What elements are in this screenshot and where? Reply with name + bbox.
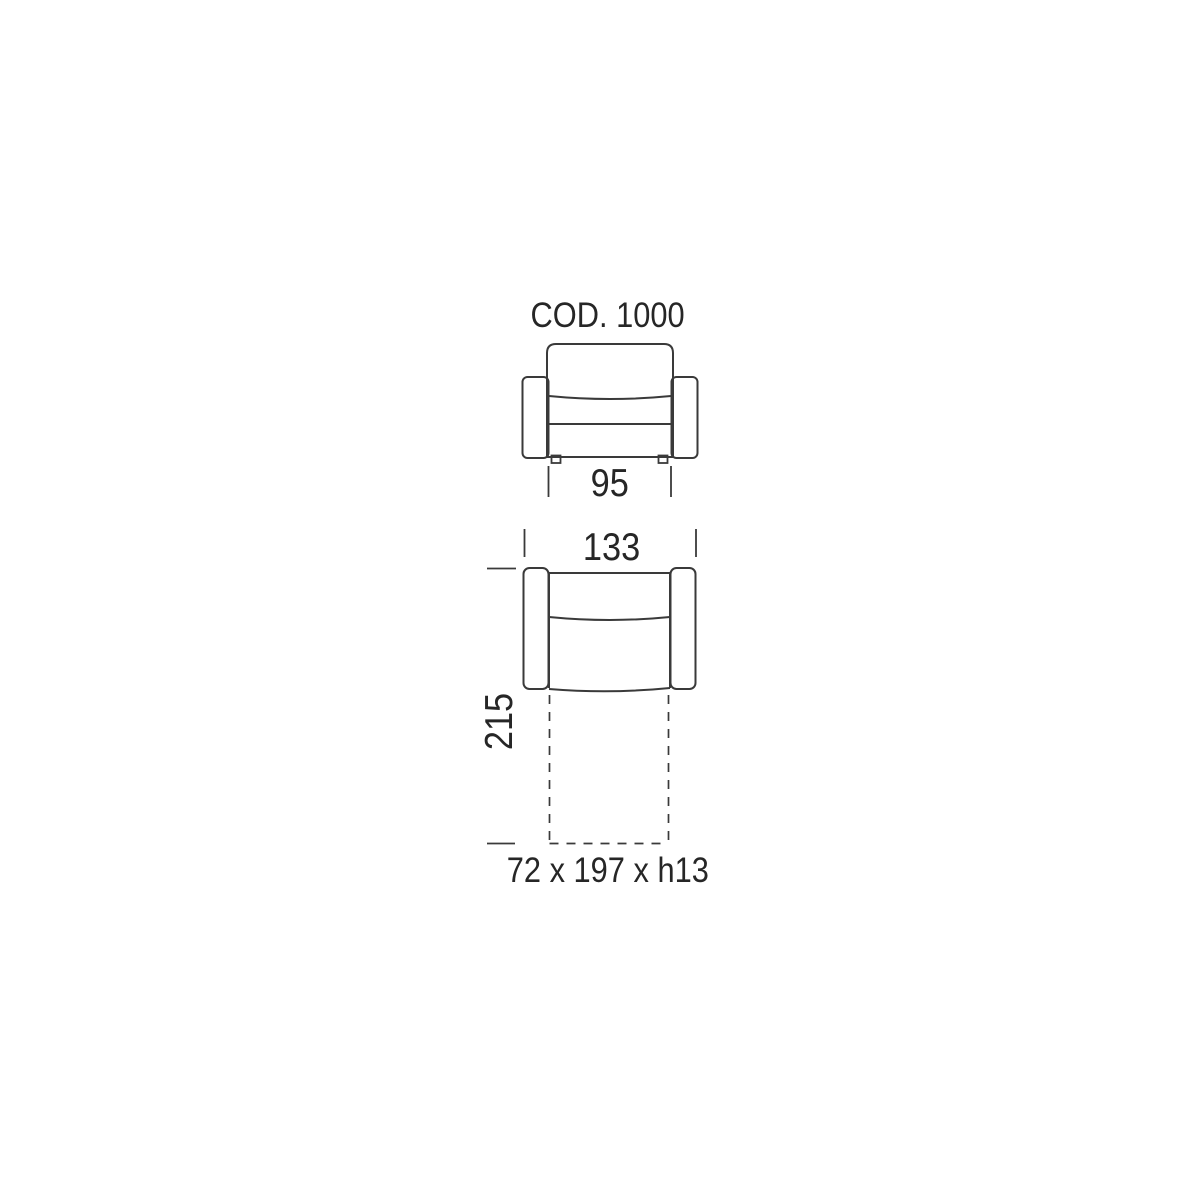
top-backrest-edge-line (549, 617, 670, 620)
depth-dimension-label: 215 (478, 660, 522, 782)
product-code-label: COD. 1000 (458, 295, 758, 335)
front-left-armrest (523, 377, 549, 458)
product-code-text: COD. 1000 (531, 298, 685, 333)
pullout-bed-dashed-outline (550, 695, 669, 844)
front-seat-cushion-line (549, 396, 671, 399)
bed-size-text: 72 x 197 x h13 (507, 853, 709, 888)
top-left-armrest (524, 568, 549, 689)
front-width-dimension-text: 95 (591, 464, 629, 503)
front-view-drawing (523, 344, 698, 463)
top-width-dimension-text: 133 (583, 528, 640, 567)
top-right-armrest (671, 568, 696, 689)
front-right-armrest (672, 377, 698, 458)
armchair-technical-drawing (0, 0, 1200, 1200)
depth-dimension-text: 215 (481, 692, 520, 749)
top-width-dimension-label: 133 (512, 528, 712, 566)
top-view-drawing (524, 568, 696, 691)
top-seat-front-line (549, 688, 670, 691)
top-body-outline (549, 573, 670, 688)
diagram-canvas: COD. 1000 95 133 215 72 x 197 x h13 (0, 0, 1200, 1200)
front-body-outline (547, 344, 673, 457)
front-width-dimension-label: 95 (510, 464, 710, 502)
bed-size-label: 72 x 197 x h13 (448, 851, 768, 889)
